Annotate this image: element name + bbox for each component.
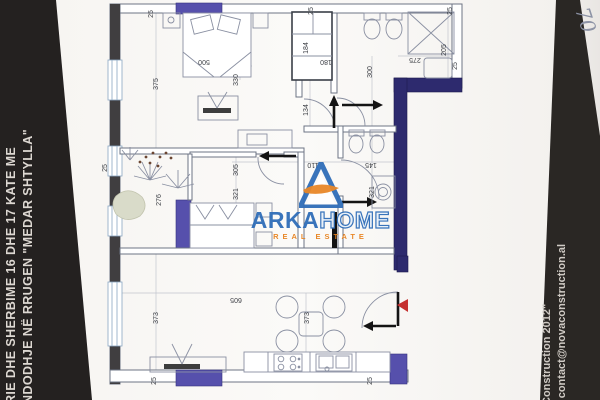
floor-plan-photo: 25 500 330 375 25 184 180 300 275 205 25… xyxy=(0,0,600,400)
right-banner-text: Construction 2012" : contact@novaconstru… xyxy=(540,145,580,400)
dim-label: 25 xyxy=(447,7,454,15)
dim-label: 373 xyxy=(153,312,160,324)
dim-label: 25 xyxy=(452,62,459,70)
outer-walls xyxy=(108,4,462,384)
bedroom1-furniture xyxy=(163,13,292,148)
dim-label: 25 xyxy=(151,377,158,385)
bedroom2-furniture xyxy=(190,203,272,248)
dim-label: 500 xyxy=(198,58,210,65)
right-banner-line2: : contact@novaconstruction.al xyxy=(555,145,570,400)
dim-label: 145 xyxy=(365,161,377,168)
dim-label: 605 xyxy=(230,296,242,303)
dim-label: 180 xyxy=(320,58,332,65)
dim-label: 300 xyxy=(367,66,374,78)
dim-label: 25 xyxy=(367,377,374,385)
window xyxy=(108,282,122,346)
dim-label: 134 xyxy=(303,104,310,116)
dim-label: 25 xyxy=(102,164,109,172)
dim-label: 330 xyxy=(233,74,240,86)
dim-label: 375 xyxy=(153,78,160,90)
dim-label: 321 xyxy=(233,188,240,200)
dim-label: 110 xyxy=(307,161,318,168)
dim-label: 276 xyxy=(156,194,163,206)
dim-label: 25 xyxy=(308,7,315,15)
dim-label: 205 xyxy=(441,44,448,56)
window xyxy=(108,60,122,100)
interior-walls xyxy=(120,13,396,254)
dim-label: 25 xyxy=(148,10,155,18)
floor-plan: 25 500 330 375 25 184 180 300 275 205 25… xyxy=(0,0,600,400)
dim-label: 373 xyxy=(304,312,311,324)
right-banner-line1: Construction 2012" xyxy=(540,145,555,400)
dim-label: 184 xyxy=(303,42,310,54)
living-kitchen-furniture xyxy=(150,296,390,372)
dim-label: 321 xyxy=(369,186,376,198)
dim-label: 305 xyxy=(233,164,240,176)
dim-label: 275 xyxy=(409,56,421,63)
closet xyxy=(292,12,332,80)
